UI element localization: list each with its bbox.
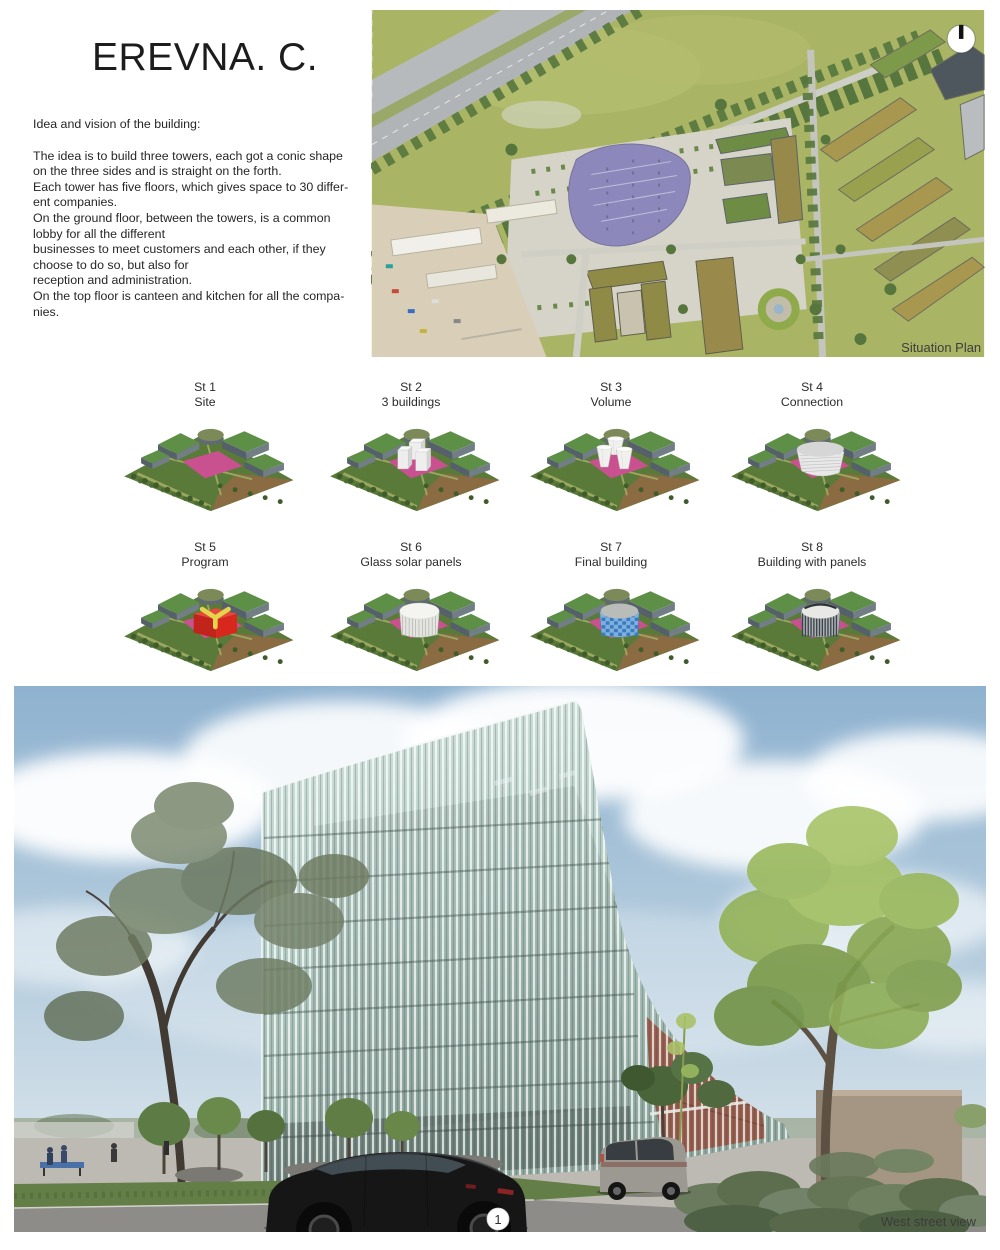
step-4: St 4 Connection [706, 380, 918, 519]
street-view-caption: West street view [881, 1214, 977, 1229]
step-8-id: St 8 [706, 540, 918, 555]
step-5-id: St 5 [99, 540, 311, 555]
intro-heading: Idea and vision of the building: [33, 117, 365, 133]
step-1-label: Site [99, 395, 311, 410]
step-8-diagram [712, 580, 912, 674]
street-view-svg: 1 West street view [14, 686, 986, 1232]
step-5: St 5 Program [99, 540, 311, 679]
step-7: St 7 Final building [505, 540, 717, 679]
step-6-label: Glass solar panels [305, 555, 517, 570]
step-5-label: Program [99, 555, 311, 570]
step-6-diagram [311, 580, 511, 674]
step-2-label: 3 buildings [305, 395, 517, 410]
step-4-label: Connection [706, 395, 918, 410]
step-7-id: St 7 [505, 540, 717, 555]
north-arrow-icon [947, 25, 975, 53]
step-3-diagram [511, 420, 711, 514]
step-7-label: Final building [505, 555, 717, 570]
step-6: St 6 Glass solar panels [305, 540, 517, 679]
step-3-label: Volume [505, 395, 717, 410]
round-building [758, 288, 800, 330]
step-3: St 3 Volume [505, 380, 717, 519]
step-2-diagram [311, 420, 511, 514]
step-8-label: Building with panels [706, 555, 918, 570]
step-4-diagram [712, 420, 912, 514]
minivan [597, 1137, 691, 1200]
step-2-id: St 2 [305, 380, 517, 395]
step-4-id: St 4 [706, 380, 918, 395]
view-marker-label: 1 [494, 1212, 501, 1227]
situation-plan-image: Situation Plan [371, 10, 985, 357]
courtyard-building [716, 128, 803, 224]
step-3-id: St 3 [505, 380, 717, 395]
step-6-id: St 6 [305, 540, 517, 555]
step-1: St 1 Site [99, 380, 311, 519]
step-2: St 2 3 buildings [305, 380, 517, 519]
situation-plan-caption: Situation Plan [901, 340, 981, 355]
step-8: St 8 Building with panels [706, 540, 918, 679]
page-title: EREVNA. C. [92, 36, 318, 80]
step-1-id: St 1 [99, 380, 311, 395]
step-5-diagram [105, 580, 305, 674]
intro-text: Idea and vision of the building: The ide… [33, 117, 365, 320]
street-view-render: 1 West street view [14, 686, 986, 1232]
view-marker: 1 [487, 1208, 509, 1230]
situation-plan-svg: Situation Plan [371, 10, 985, 357]
step-7-diagram [511, 580, 711, 674]
presentation-board: { "header": { "title": "EREVNA. C.", "in… [0, 0, 1000, 1250]
step-1-diagram [105, 420, 305, 514]
intro-body: The idea is to build three towers, each … [33, 149, 365, 321]
